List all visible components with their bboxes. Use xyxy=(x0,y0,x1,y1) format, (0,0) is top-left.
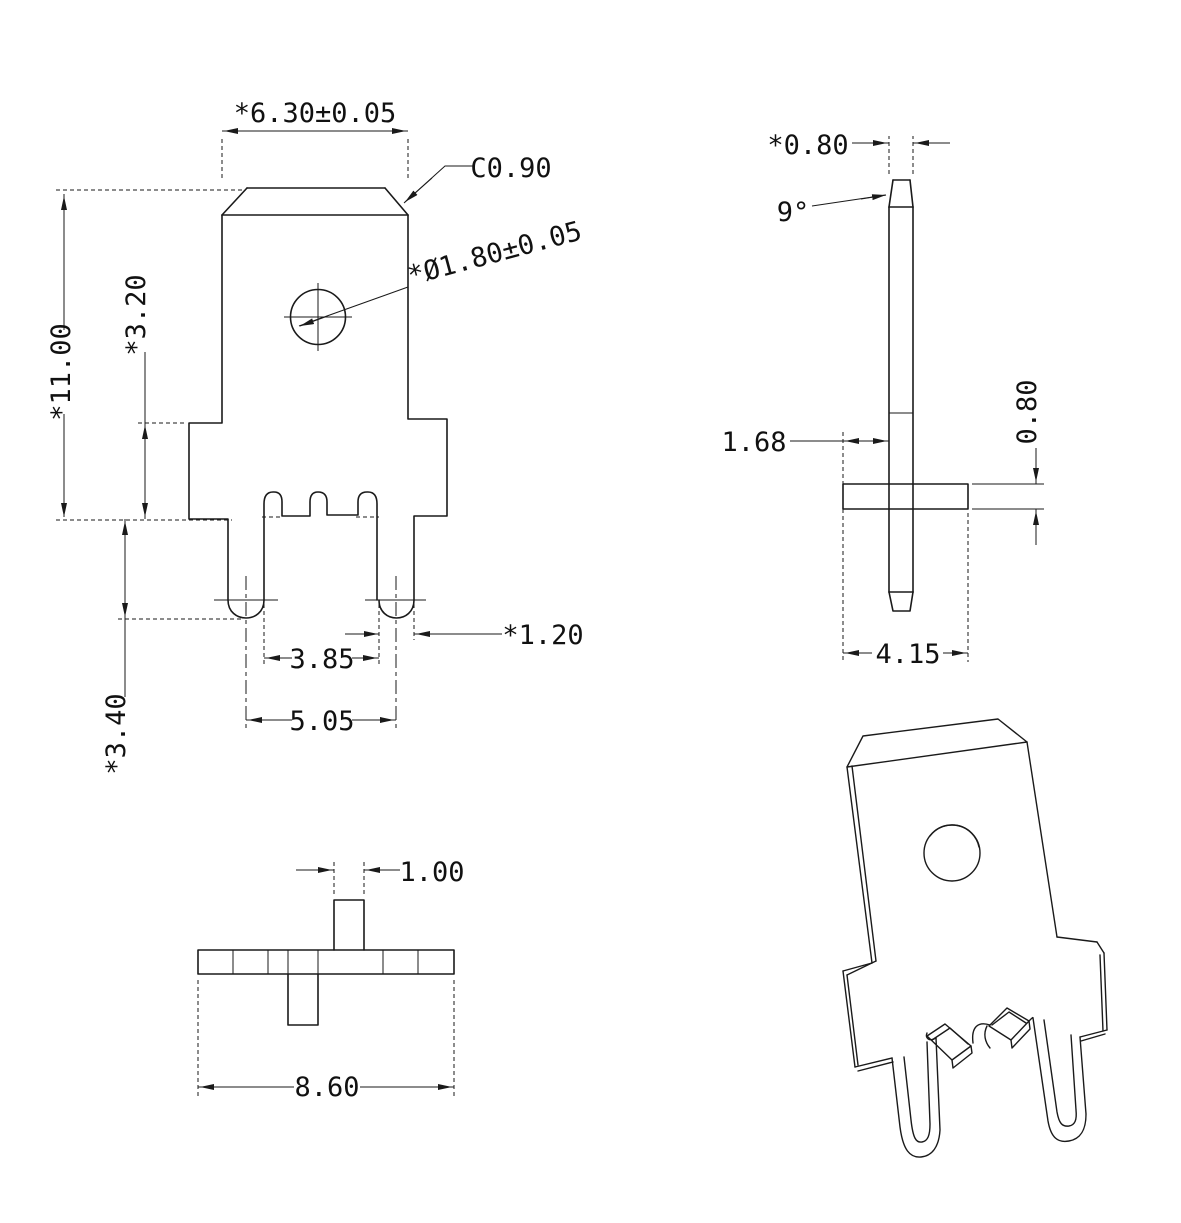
bottom-dimension-lines xyxy=(198,870,454,1087)
dim-overall-width: 8.60 xyxy=(294,1072,359,1103)
dim-flange-thickness: 0.80 xyxy=(1012,379,1043,444)
iso-view xyxy=(843,719,1107,1157)
dim-blade-offset: 1.68 xyxy=(721,427,786,458)
dim-chamfer: C0.90 xyxy=(470,153,551,184)
blade-section-tab xyxy=(334,900,364,950)
solder-tab-down xyxy=(288,974,318,1025)
dim-leg-inner-gap: 3.85 xyxy=(289,644,354,675)
front-dimension-lines xyxy=(64,131,502,720)
side-view: *0.80 9° 1.68 0.80 4.15 xyxy=(721,130,1044,670)
technical-drawing: *6.30±0.05 C0.90 *Ø1.80±0.05 *11.00 *3.2… xyxy=(0,0,1181,1223)
dim-flange-width: 4.15 xyxy=(875,639,940,670)
dim-tip-angle: 9° xyxy=(777,197,810,228)
dim-shoulder-height: *3.20 xyxy=(121,274,152,355)
bottom-view: 1.00 8.60 xyxy=(198,857,465,1103)
bottom-outline xyxy=(198,900,454,1025)
side-outline xyxy=(843,180,968,611)
dim-leg-width: *1.20 xyxy=(502,620,583,651)
dim-blade-thickness: *0.80 xyxy=(767,130,848,161)
dim-tab-width: 1.00 xyxy=(399,857,464,888)
front-outline xyxy=(189,188,447,618)
dim-leg-length: *3.40 xyxy=(101,693,132,774)
side-flange xyxy=(843,484,968,509)
dim-overall-height: *11.00 xyxy=(46,323,77,421)
front-view: *6.30±0.05 C0.90 *Ø1.80±0.05 *11.00 *3.2… xyxy=(46,98,585,775)
dim-hole-dia: *Ø1.80±0.05 xyxy=(404,216,585,292)
bottom-extension-lines xyxy=(198,860,454,1096)
drawing-sheet: *6.30±0.05 C0.90 *Ø1.80±0.05 *11.00 *3.2… xyxy=(0,0,1181,1223)
dim-leg-pitch: 5.05 xyxy=(289,706,354,737)
dim-blade-width: *6.30±0.05 xyxy=(234,98,397,129)
